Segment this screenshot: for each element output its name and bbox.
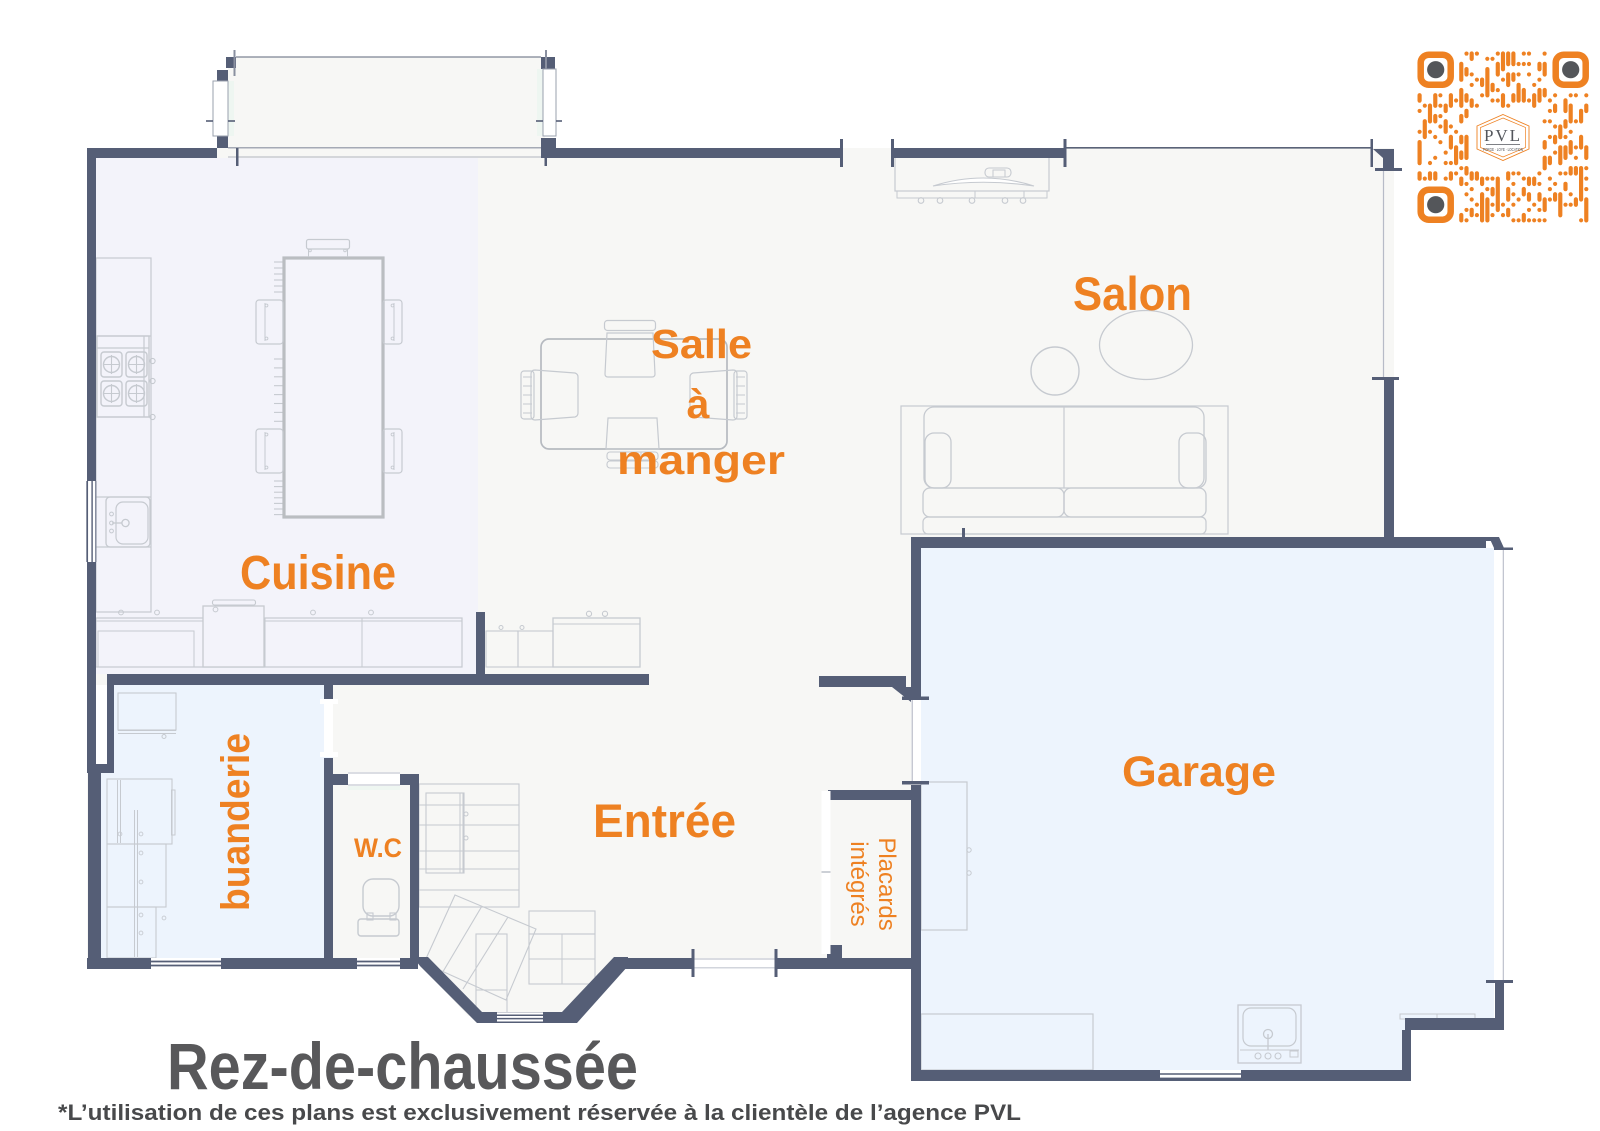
svg-text:PORGE · LOYE · LOCATION: PORGE · LOYE · LOCATION — [1483, 147, 1523, 152]
svg-text:Entrée: Entrée — [593, 794, 736, 847]
svg-text:Garage: Garage — [1122, 748, 1276, 796]
svg-text:*L’utilisation de ces plans es: *L’utilisation de ces plans est exclusiv… — [58, 1100, 1021, 1125]
svg-text:intégrés: intégrés — [845, 841, 872, 926]
svg-text:manger: manger — [617, 437, 785, 483]
svg-text:Rez-de-chaussée: Rez-de-chaussée — [167, 1029, 638, 1103]
svg-text:PVL: PVL — [1484, 126, 1522, 145]
svg-text:Placards: Placards — [873, 837, 900, 930]
svg-text:à: à — [687, 381, 710, 427]
svg-text:Cuisine: Cuisine — [240, 547, 396, 600]
svg-text:Salon: Salon — [1073, 267, 1192, 320]
svg-text:W.C: W.C — [354, 833, 402, 863]
svg-text:buanderie: buanderie — [214, 733, 258, 911]
svg-text:Salle: Salle — [651, 321, 752, 367]
